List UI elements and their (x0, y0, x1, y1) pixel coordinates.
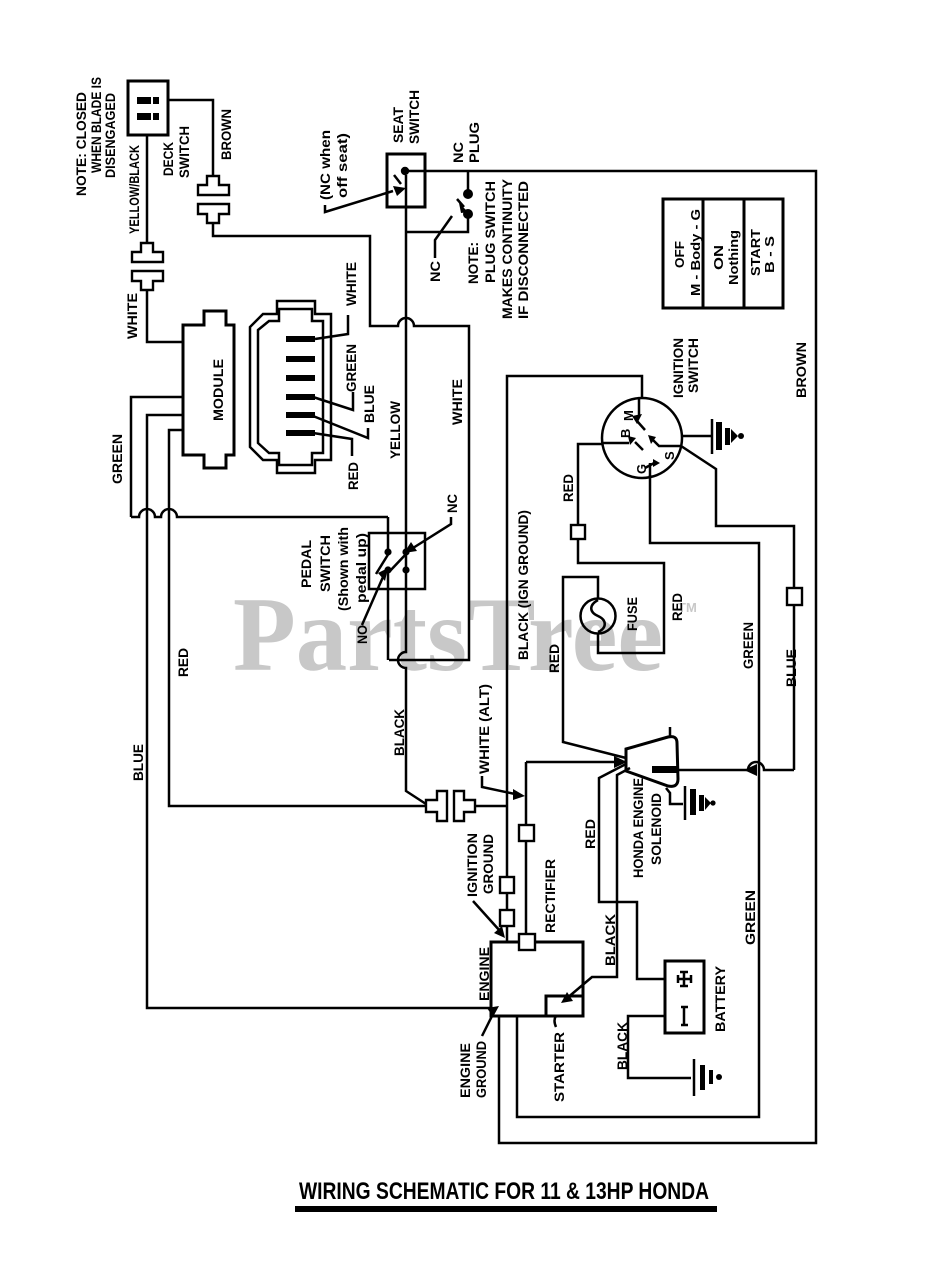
svg-text:NOTE:: NOTE: (465, 242, 481, 284)
svg-text:BATTERY: BATTERY (712, 965, 728, 1032)
svg-text:START: START (748, 229, 763, 276)
svg-text:OFF: OFF (672, 241, 687, 268)
svg-text:WHITE: WHITE (124, 293, 140, 339)
svg-text:GREEN: GREEN (343, 344, 359, 392)
svg-text:SEAT: SEAT (390, 107, 406, 143)
svg-text:YELLOW/BLACK: YELLOW/BLACK (126, 145, 142, 234)
svg-text:NOTE: CLOSED: NOTE: CLOSED (73, 92, 89, 196)
svg-text:IF DISCONNECTED: IF DISCONNECTED (515, 181, 531, 319)
svg-text:ENGINE: ENGINE (476, 947, 492, 1001)
svg-text:IGNITION: IGNITION (464, 833, 480, 897)
svg-text:DISENGAGED: DISENGAGED (102, 93, 118, 178)
svg-text:RED: RED (582, 819, 598, 849)
svg-text:IGNITION: IGNITION (670, 338, 686, 398)
svg-text:RED: RED (560, 474, 576, 502)
svg-text:BLACK (IGN GROUND): BLACK (IGN GROUND) (515, 510, 531, 660)
svg-text:SWITCH: SWITCH (406, 90, 422, 144)
svg-text:YELLOW: YELLOW (387, 400, 403, 459)
svg-text:BLUE: BLUE (783, 649, 799, 687)
svg-text:M: M (621, 410, 636, 421)
svg-text:GREEN: GREEN (740, 622, 756, 669)
svg-text:NC: NC (427, 261, 443, 282)
svg-text:STARTER: STARTER (551, 1032, 567, 1102)
svg-text:BROWN: BROWN (793, 342, 809, 398)
svg-text:RED: RED (345, 462, 361, 490)
svg-text:ENGINE: ENGINE (457, 1043, 473, 1098)
svg-text:WHITE (ALT): WHITE (ALT) (476, 684, 492, 774)
svg-text:G: G (634, 464, 649, 474)
svg-text:RECTIFIER: RECTIFIER (542, 859, 558, 933)
svg-text:NC: NC (444, 494, 460, 513)
svg-text:BLACK: BLACK (391, 709, 407, 756)
svg-text:NO: NO (354, 625, 370, 644)
svg-text:WHITE: WHITE (449, 379, 465, 425)
svg-text:SWITCH: SWITCH (317, 535, 333, 592)
svg-text:WIRING SCHEMATIC FOR 11 & 13HP: WIRING SCHEMATIC FOR 11 & 13HP HONDA (299, 1178, 709, 1205)
svg-text:ON: ON (711, 245, 726, 270)
svg-text:(Shown with: (Shown with (335, 527, 351, 611)
svg-text:M - Body - G: M - Body - G (688, 209, 703, 296)
svg-text:WHITE: WHITE (343, 262, 359, 306)
svg-text:PEDAL: PEDAL (298, 540, 314, 588)
svg-text:GROUND: GROUND (473, 1041, 489, 1098)
svg-text:PLUG: PLUG (466, 122, 482, 163)
svg-text:RED: RED (669, 593, 685, 621)
svg-text:B: B (618, 429, 633, 438)
svg-text:SWITCH: SWITCH (176, 126, 192, 178)
svg-text:pedal up): pedal up) (353, 533, 369, 603)
svg-text:Nothing: Nothing (726, 230, 741, 285)
svg-text:BLUE: BLUE (361, 385, 377, 423)
svg-text:MODULE: MODULE (210, 359, 226, 421)
svg-text:off seat): off seat) (334, 133, 350, 198)
svg-text:BLACK: BLACK (602, 914, 618, 966)
svg-text:FUSE: FUSE (624, 597, 640, 631)
svg-text:SWITCH: SWITCH (685, 338, 701, 393)
svg-text:SOLENOID: SOLENOID (648, 793, 664, 865)
svg-text:GREEN: GREEN (109, 434, 125, 484)
svg-text:BROWN: BROWN (218, 109, 234, 160)
svg-text:PLUG SWITCH: PLUG SWITCH (482, 181, 498, 283)
svg-text:MAKES CONTINUITY: MAKES CONTINUITY (499, 178, 515, 319)
svg-text:(NC when: (NC when (317, 130, 333, 200)
svg-text:GROUND: GROUND (480, 834, 496, 894)
svg-text:NC: NC (450, 142, 466, 163)
svg-text:RED: RED (546, 644, 562, 673)
svg-text:BLACK: BLACK (614, 1022, 630, 1070)
svg-text:RED: RED (175, 648, 191, 677)
svg-text:GREEN: GREEN (742, 890, 758, 945)
svg-text:DECK: DECK (160, 142, 176, 176)
svg-text:B - S: B - S (762, 236, 777, 273)
svg-text:S: S (662, 451, 677, 460)
svg-text:HONDA ENGINE: HONDA ENGINE (630, 778, 646, 878)
svg-text:BLUE: BLUE (130, 744, 146, 781)
